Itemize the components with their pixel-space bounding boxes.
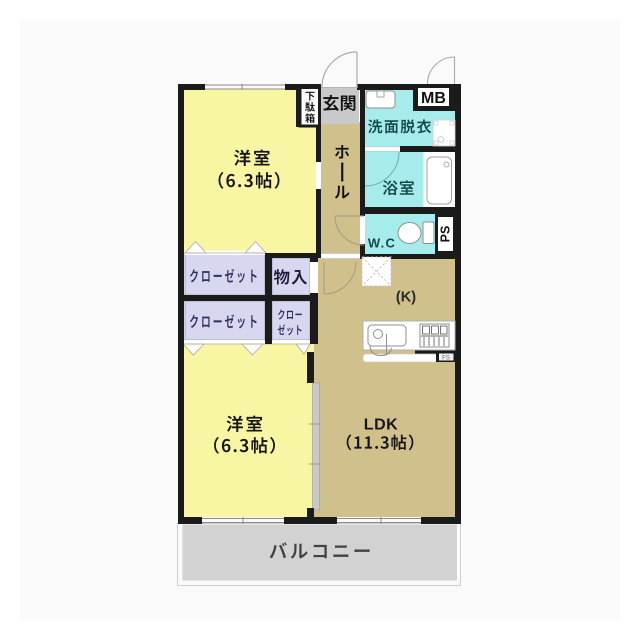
svg-text:W.C: W.C xyxy=(368,236,396,251)
svg-text:(K): (K) xyxy=(396,290,416,306)
svg-text:PS: PS xyxy=(439,226,453,243)
svg-text:MB: MB xyxy=(421,90,446,107)
svg-text:LDK: LDK xyxy=(364,417,398,434)
svg-text:FS: FS xyxy=(442,356,450,362)
